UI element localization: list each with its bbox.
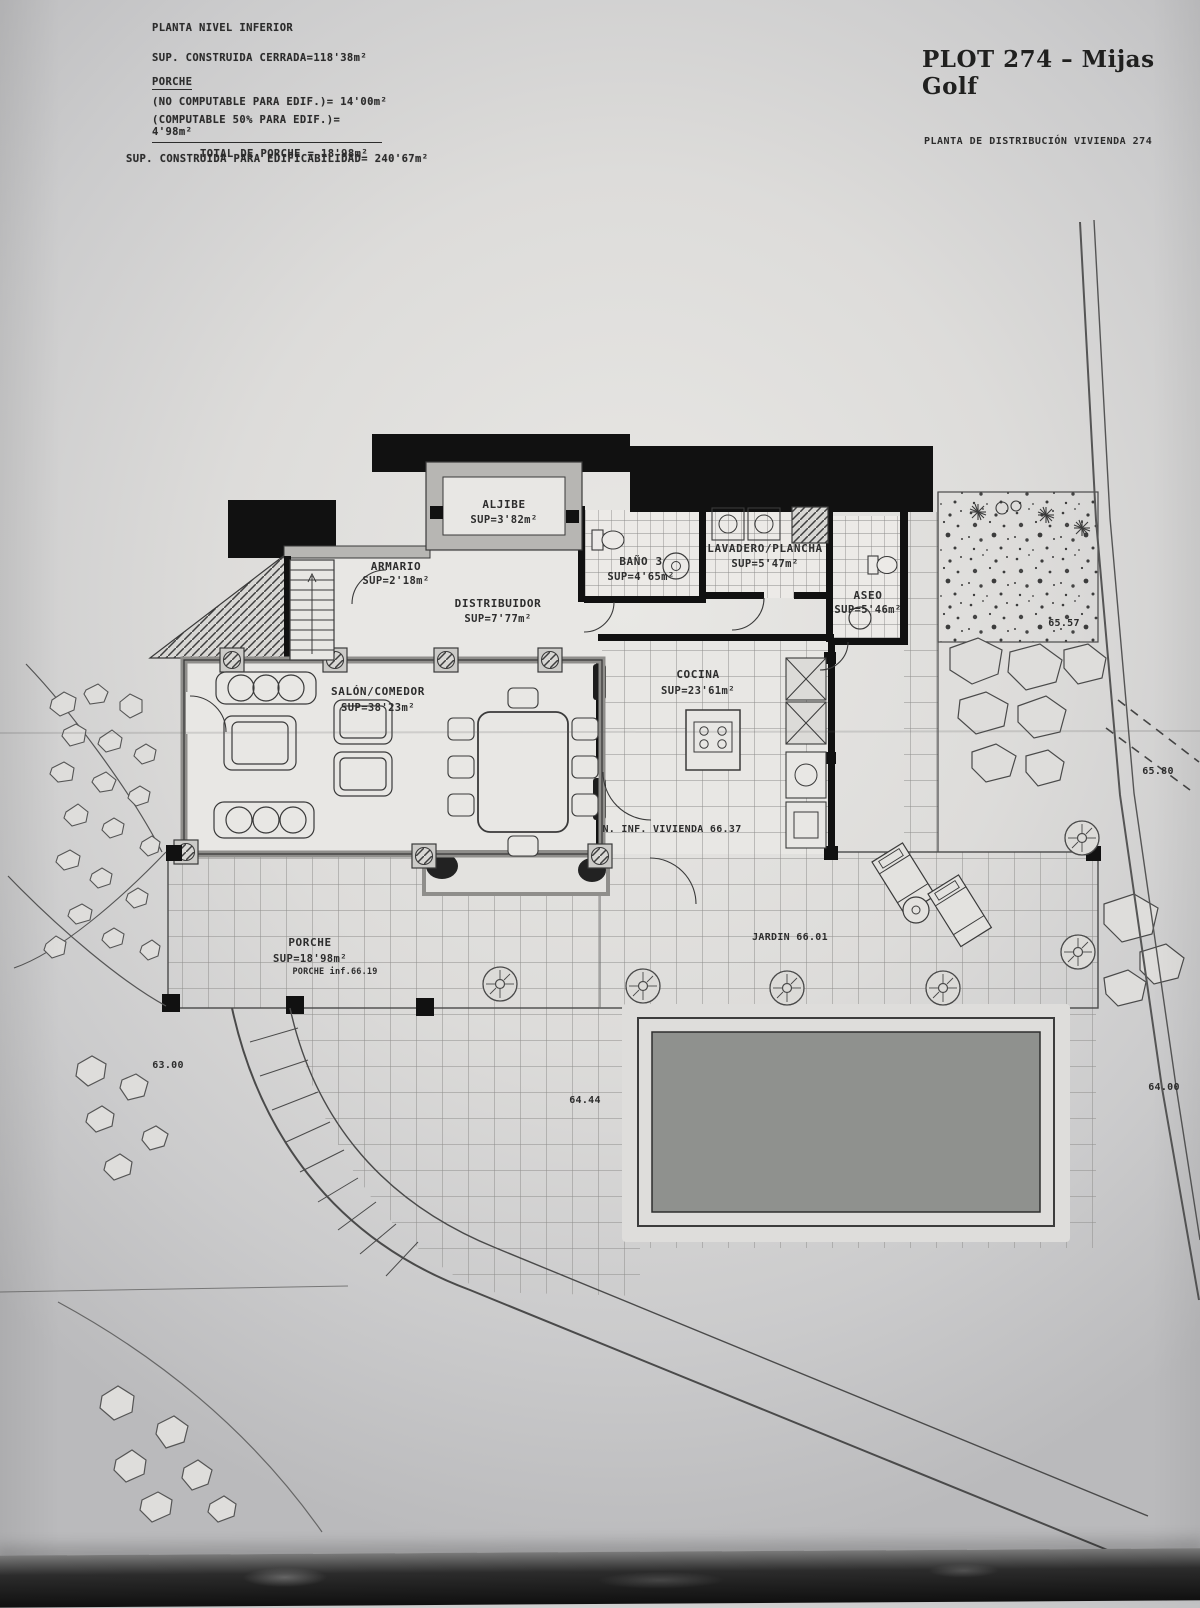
label-salon-area: SUP=38'23m² — [341, 702, 415, 714]
label-salon: SALÓN/COMEDOR — [331, 685, 425, 698]
label-lavadero-area: SUP=5'47m² — [731, 558, 798, 570]
label-vivienda-level: N. INF. VIVIENDA 66.37 — [602, 824, 741, 835]
label-6444: 64.44 — [569, 1095, 601, 1106]
floor-plan-drawing: ALJIBE SUP=3'82m² ARMARIO SUP=2'18m² DIS… — [0, 0, 1200, 1600]
pool — [622, 1004, 1070, 1242]
label-6400: 64.00 — [1148, 1082, 1180, 1093]
photo-bottom-edge — [0, 1548, 1200, 1607]
label-aseo: ASEO — [854, 589, 883, 602]
label-jardin-level: JARDIN 66.01 — [752, 932, 828, 943]
label-63: 63.00 — [152, 1060, 184, 1071]
label-cocina: COCINA — [676, 668, 719, 681]
label-porche-inf: PORCHE inf.66.19 — [292, 966, 377, 977]
label-armario-area: SUP=2'18m² — [362, 575, 429, 587]
label-aljibe-area: SUP=3'82m² — [470, 514, 537, 526]
label-distribuidor-area: SUP=7'77m² — [464, 613, 531, 625]
label-6557: 65.57 — [1048, 618, 1080, 629]
label-bano3: BAÑO 3 — [619, 555, 662, 568]
scanned-floor-plan-sheet: PLANTA NIVEL INFERIOR SUP. CONSTRUIDA CE… — [0, 0, 1200, 1600]
label-cocina-area: SUP=23'61m² — [661, 685, 735, 697]
garden-left — [8, 664, 166, 1006]
label-porche-area: SUP=18'98m² — [273, 953, 347, 965]
label-aseo-area: SUP=5'46m² — [834, 604, 901, 616]
staircase — [290, 560, 334, 660]
label-6580: 65.80 — [1142, 766, 1174, 777]
label-bano3-area: SUP=4'65m² — [607, 571, 674, 583]
label-aljibe: ALJIBE — [482, 498, 525, 511]
label-distribuidor: DISTRIBUIDOR — [455, 597, 542, 610]
road-right — [1080, 220, 1200, 1300]
label-lavadero: LAVADERO/PLANCHA — [707, 542, 823, 555]
label-porche: PORCHE — [288, 936, 331, 949]
label-armario: ARMARIO — [371, 560, 422, 573]
